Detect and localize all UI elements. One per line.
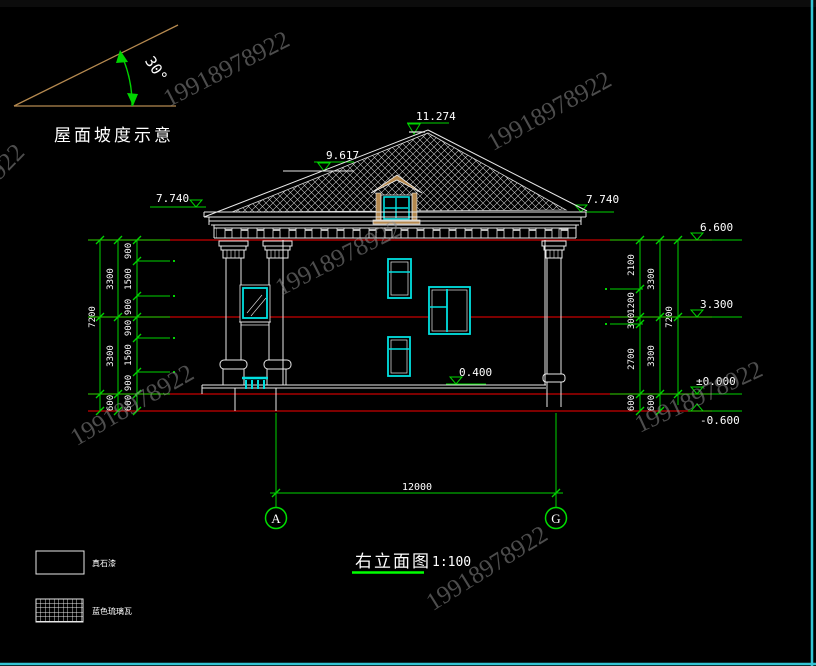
marker-level1: 3.300 [688,298,742,317]
column-right [542,241,566,407]
window-2f-left [388,259,411,298]
legend-swatch-plain [36,551,84,574]
arc-arrow-bottom [127,93,138,106]
dim-label: 600 [627,395,637,411]
walls [202,240,546,411]
legend-label-2: 蓝色琉璃瓦 [92,606,132,616]
marker-value: 7.740 [156,192,189,205]
elevation-drawing: 7200 3300 3300 600 900 1500 900 900 1500… [0,0,816,666]
porch-window [239,285,271,325]
dim-label: 1500 [124,268,134,290]
overall-dimension: 12000 [270,413,563,507]
watermark-text: 19918978922 [0,139,30,257]
dim-label: 7200 [88,306,98,328]
dim-label: 3300 [106,268,116,290]
drawing-title: 右立面图 1:100 [352,552,471,573]
dim-label: 3300 [647,268,657,290]
porch-balustrade [242,378,268,389]
marker-eave-left: 7.740 [150,192,206,207]
dim-label: 2100 [627,254,637,276]
marker-value: 7.740 [586,193,619,206]
grid-label-g: G [551,511,560,526]
marker-eave-right: 7.740 [572,193,619,212]
dim-label: 900 [124,299,134,315]
legend-swatch-hatch [36,599,83,622]
marker-value: 9.617 [326,149,359,162]
cad-drawing-canvas: 7200 3300 3300 600 900 1500 900 900 1500… [0,0,816,666]
slope-caption: 屋面坡度示意 [54,126,174,145]
watermark-text: 19918978922 [66,359,199,451]
dim-label: 3300 [106,345,116,367]
material-legend: 真石漆 蓝色琉璃瓦 [36,551,132,622]
dim-label: 900 [124,320,134,336]
overall-width-label: 12000 [402,482,432,493]
dim-label: 1200 [627,292,637,314]
slope-angle-label: 30° [141,53,171,86]
dormer-post-left [376,193,381,220]
marker-ridge: 11.274 [407,110,456,134]
marker-level2: 6.600 [688,221,742,240]
marker-value: 11.274 [416,110,456,123]
window-stair-middle [429,287,470,334]
marker-value: -0.600 [700,414,740,427]
marker-value: 3.300 [700,298,733,311]
dim-label: 300 [627,313,637,329]
title-text: 右立面图 [355,552,431,571]
watermark-text: 19918978922 [483,66,616,156]
marker-value: 0.400 [459,366,492,379]
grid-bubbles: A G [266,508,567,529]
dim-label: 7200 [665,306,675,328]
dim-label: 1500 [124,344,134,366]
marker-value: 6.600 [700,221,733,234]
legend-label-1: 真石漆 [92,558,116,568]
window-1f-left [388,337,410,376]
top-strip [0,0,816,7]
marker-porch-floor: 0.400 [446,366,492,384]
roof-slope-diagram: 30° 屋面坡度示意 [14,25,178,145]
dormer-post-right [412,193,417,220]
dim-label: 2700 [627,348,637,370]
dim-label: 3300 [647,345,657,367]
grid-label-a: A [271,511,281,526]
watermark-text: 19918978922 [159,26,294,112]
dim-label: 900 [124,243,134,259]
watermarks: 19918978922 19918978922 19918978922 1991… [0,26,767,616]
